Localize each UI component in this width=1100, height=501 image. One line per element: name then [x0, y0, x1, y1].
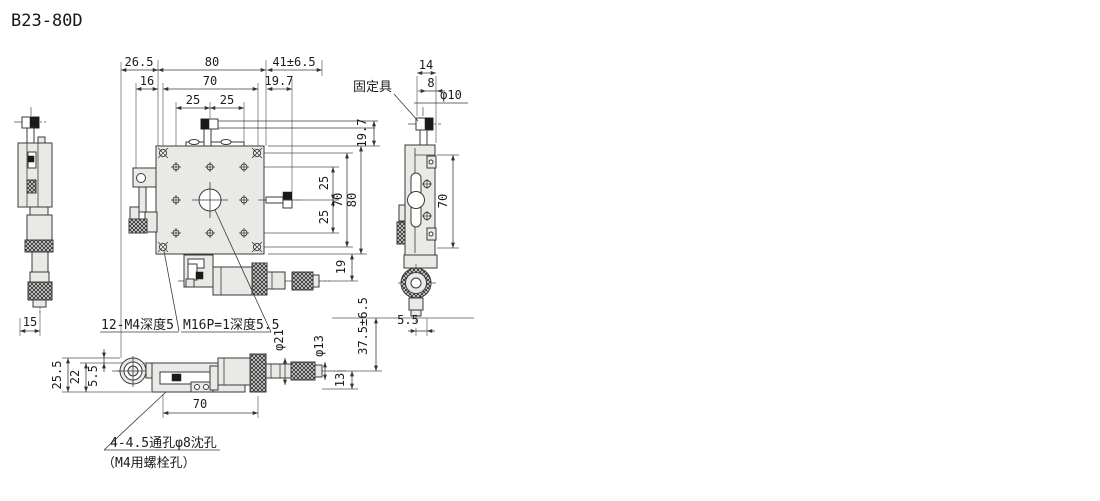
dim-25-down: 25 [317, 210, 331, 224]
dim-70-height: 70 [331, 193, 345, 207]
label-center-tap: M16P=1深度5.5 [183, 317, 279, 333]
left-side-view [14, 107, 53, 314]
knurl-lock-ring [252, 263, 267, 295]
dim-19: 19 [334, 260, 348, 274]
dim-phi13: φ13 [312, 335, 326, 357]
micrometer-thimble [291, 362, 315, 380]
dim-16: 16 [140, 74, 154, 88]
dim-70-front: 70 [193, 397, 207, 411]
drawing-page: B23-80D [0, 0, 1100, 501]
micrometer-barrel [27, 215, 52, 240]
dim-13: 13 [333, 373, 347, 387]
dim-5-5-side: 5.5 [397, 313, 419, 327]
knurl-lock-ring [250, 354, 266, 392]
side-hole [408, 192, 425, 209]
y-axis-micrometer [178, 255, 330, 295]
micrometer-thimble [292, 272, 313, 290]
label-base-holes-note: （M4用螺栓孔） [102, 456, 196, 471]
dim-25-5: 25.5 [50, 361, 64, 390]
dim-8: 8 [427, 76, 434, 90]
label-base-holes: 4-4.5通孔φ8沈孔 [110, 436, 217, 451]
dim-19-7-top: 19.7 [265, 74, 294, 88]
dim-22: 22 [68, 370, 82, 384]
dim-15: 15 [23, 315, 37, 329]
dim-25-left: 25 [186, 93, 200, 107]
label-fixture: 固定具 [353, 80, 392, 95]
top-clamp-screw [186, 119, 378, 146]
right-side-view [397, 107, 441, 322]
x-axis-attachments [129, 168, 157, 233]
dim-80-width: 80 [205, 55, 219, 69]
label-grid-taps: 12-M4深度5 [101, 317, 174, 333]
dim-5-5-front: 5.5 [86, 365, 100, 387]
micrometer-barrel [213, 267, 253, 295]
dim-41: 41±6.5 [272, 55, 315, 69]
dim-26-5: 26.5 [125, 55, 154, 69]
dim-phi10: φ10 [440, 88, 462, 102]
micrometer-thimble [28, 282, 52, 300]
knurl-lock-ring [25, 240, 53, 252]
dim-37-5: 37.5±6.5 [356, 297, 370, 355]
micrometer-barrel [218, 358, 250, 385]
dim-70-width: 70 [203, 74, 217, 88]
dim-70-side: 70 [436, 194, 450, 208]
page-title: B23-80D [11, 11, 83, 31]
dim-80-height: 80 [345, 193, 359, 207]
dim-14: 14 [419, 58, 433, 72]
dim-19-7-side: 19.7 [355, 119, 369, 148]
dim-25-up: 25 [317, 176, 331, 190]
front-view [112, 354, 348, 392]
dim-25-right: 25 [220, 93, 234, 107]
technical-drawing: B23-80D [0, 0, 1100, 501]
